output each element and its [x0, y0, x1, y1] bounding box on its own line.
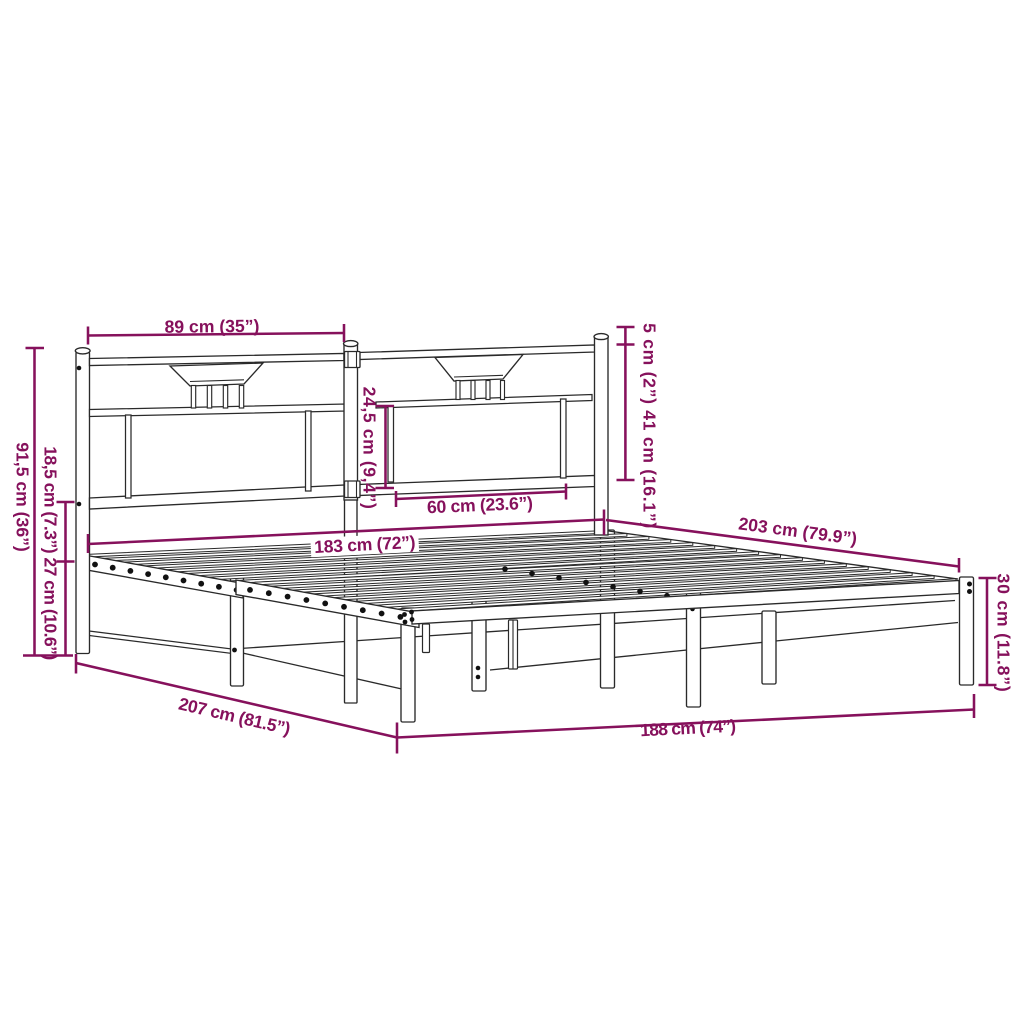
svg-text:24,5 cm (9,4”): 24,5 cm (9,4”): [360, 387, 380, 510]
svg-text:5 cm (2”) 41 cm (16.1”): 5 cm (2”) 41 cm (16.1”): [640, 323, 660, 529]
svg-text:91,5 cm (36”): 91,5 cm (36”): [13, 442, 33, 552]
svg-text:30 cm (11.8”): 30 cm (11.8”): [994, 574, 1014, 693]
svg-text:18,5 cm (7.3”) 27 cm (10.6”): 18,5 cm (7.3”) 27 cm (10.6”): [41, 446, 61, 659]
svg-text:89 cm (35”): 89 cm (35”): [164, 316, 259, 337]
